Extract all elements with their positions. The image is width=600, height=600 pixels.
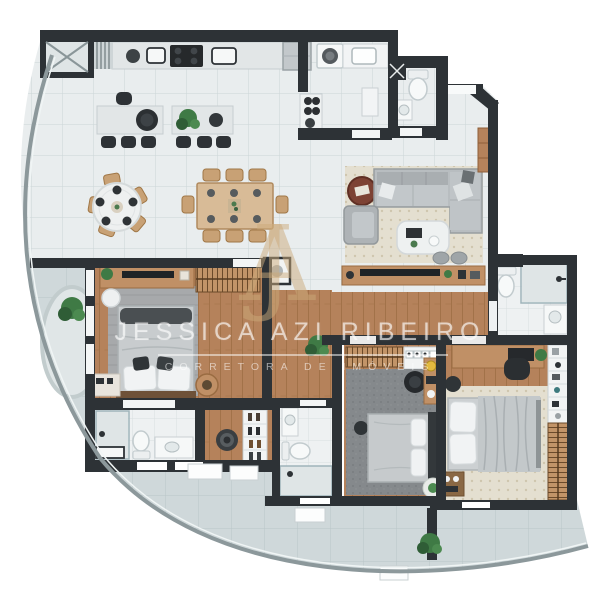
- toilet: [496, 267, 516, 297]
- bedroom-master: [440, 345, 568, 500]
- water-heater: [362, 88, 378, 116]
- toilet: [282, 442, 310, 460]
- coffee-table: [397, 221, 449, 254]
- dining-chair: [276, 196, 288, 213]
- desk-chair: [504, 358, 530, 380]
- laundry-tank: [352, 48, 376, 64]
- ac-unit: [230, 466, 258, 480]
- kitchen-plant-pot: [126, 49, 140, 63]
- dining-chair: [182, 196, 194, 213]
- floor-plan-svg: [0, 0, 600, 600]
- dining-chair: [203, 169, 220, 181]
- bed-middle: [368, 412, 437, 484]
- window: [86, 306, 94, 336]
- kitchen-counter: [112, 42, 300, 69]
- pouf: [451, 252, 467, 264]
- pouf: [102, 289, 120, 307]
- shower-floor: [522, 264, 567, 302]
- bed-left: [116, 306, 196, 399]
- island-sink: [209, 113, 223, 127]
- bar-stool: [141, 136, 156, 148]
- cushion: [132, 356, 150, 371]
- pillow: [449, 402, 476, 433]
- kitchen-island-2: [172, 106, 233, 148]
- service-cooktop: [300, 94, 322, 132]
- desk-chair: [404, 371, 426, 393]
- tv-console: [342, 266, 485, 285]
- toilet: [133, 431, 150, 459]
- cushion: [156, 356, 174, 371]
- living-room: [342, 166, 485, 285]
- stool: [354, 421, 368, 435]
- ac-unit: [188, 464, 222, 479]
- stool: [445, 376, 461, 392]
- armchair: [344, 206, 378, 244]
- dining-chair: [249, 230, 266, 242]
- bar-stool: [121, 136, 136, 148]
- sink: [396, 100, 412, 120]
- bedroom-middle: [346, 347, 443, 498]
- kitchen-sink-2: [212, 48, 236, 64]
- blanket: [478, 396, 540, 472]
- side-shelf: [424, 358, 438, 404]
- dresser-tv: [100, 266, 194, 288]
- shelf-unit: [548, 345, 568, 423]
- headboard: [116, 391, 196, 399]
- nightstand: [92, 374, 120, 396]
- window: [86, 344, 94, 374]
- duct-shaft: [388, 62, 406, 80]
- shower-floor: [280, 466, 332, 496]
- bar-stool: [197, 136, 212, 148]
- sink: [155, 437, 193, 458]
- window: [86, 270, 94, 296]
- kitchen-sink-1: [147, 48, 165, 63]
- bar-stool: [216, 136, 231, 148]
- pillow: [411, 419, 426, 446]
- pillow: [411, 449, 426, 476]
- shoe-rack: [243, 410, 267, 462]
- shower-head: [99, 431, 105, 437]
- hall-spur-floor: [332, 292, 492, 335]
- dining-chair: [203, 230, 220, 242]
- bar-stool: [176, 136, 191, 148]
- toilet: [408, 70, 428, 100]
- shower-head: [287, 471, 293, 477]
- floor-plan-image: JA JESSICA AZI RIBEIRO CORRETORA DE IMÓV…: [0, 0, 600, 600]
- ac-unit: [295, 508, 325, 522]
- cooktop: [170, 45, 203, 67]
- throw-pillow: [461, 170, 475, 184]
- headboard: [428, 412, 437, 484]
- dining-chair: [226, 169, 243, 181]
- bed-master: [448, 396, 541, 472]
- dining-chair: [249, 169, 266, 181]
- tv: [360, 269, 440, 276]
- pillow: [449, 434, 476, 465]
- sink: [282, 408, 298, 436]
- pouf: [433, 252, 449, 264]
- lamp: [426, 361, 436, 371]
- tv: [122, 271, 174, 278]
- sink: [544, 305, 567, 334]
- bar-stool: [101, 136, 116, 148]
- bar-stool: [116, 92, 132, 105]
- speaker: [346, 271, 354, 279]
- dining-chair: [226, 230, 243, 242]
